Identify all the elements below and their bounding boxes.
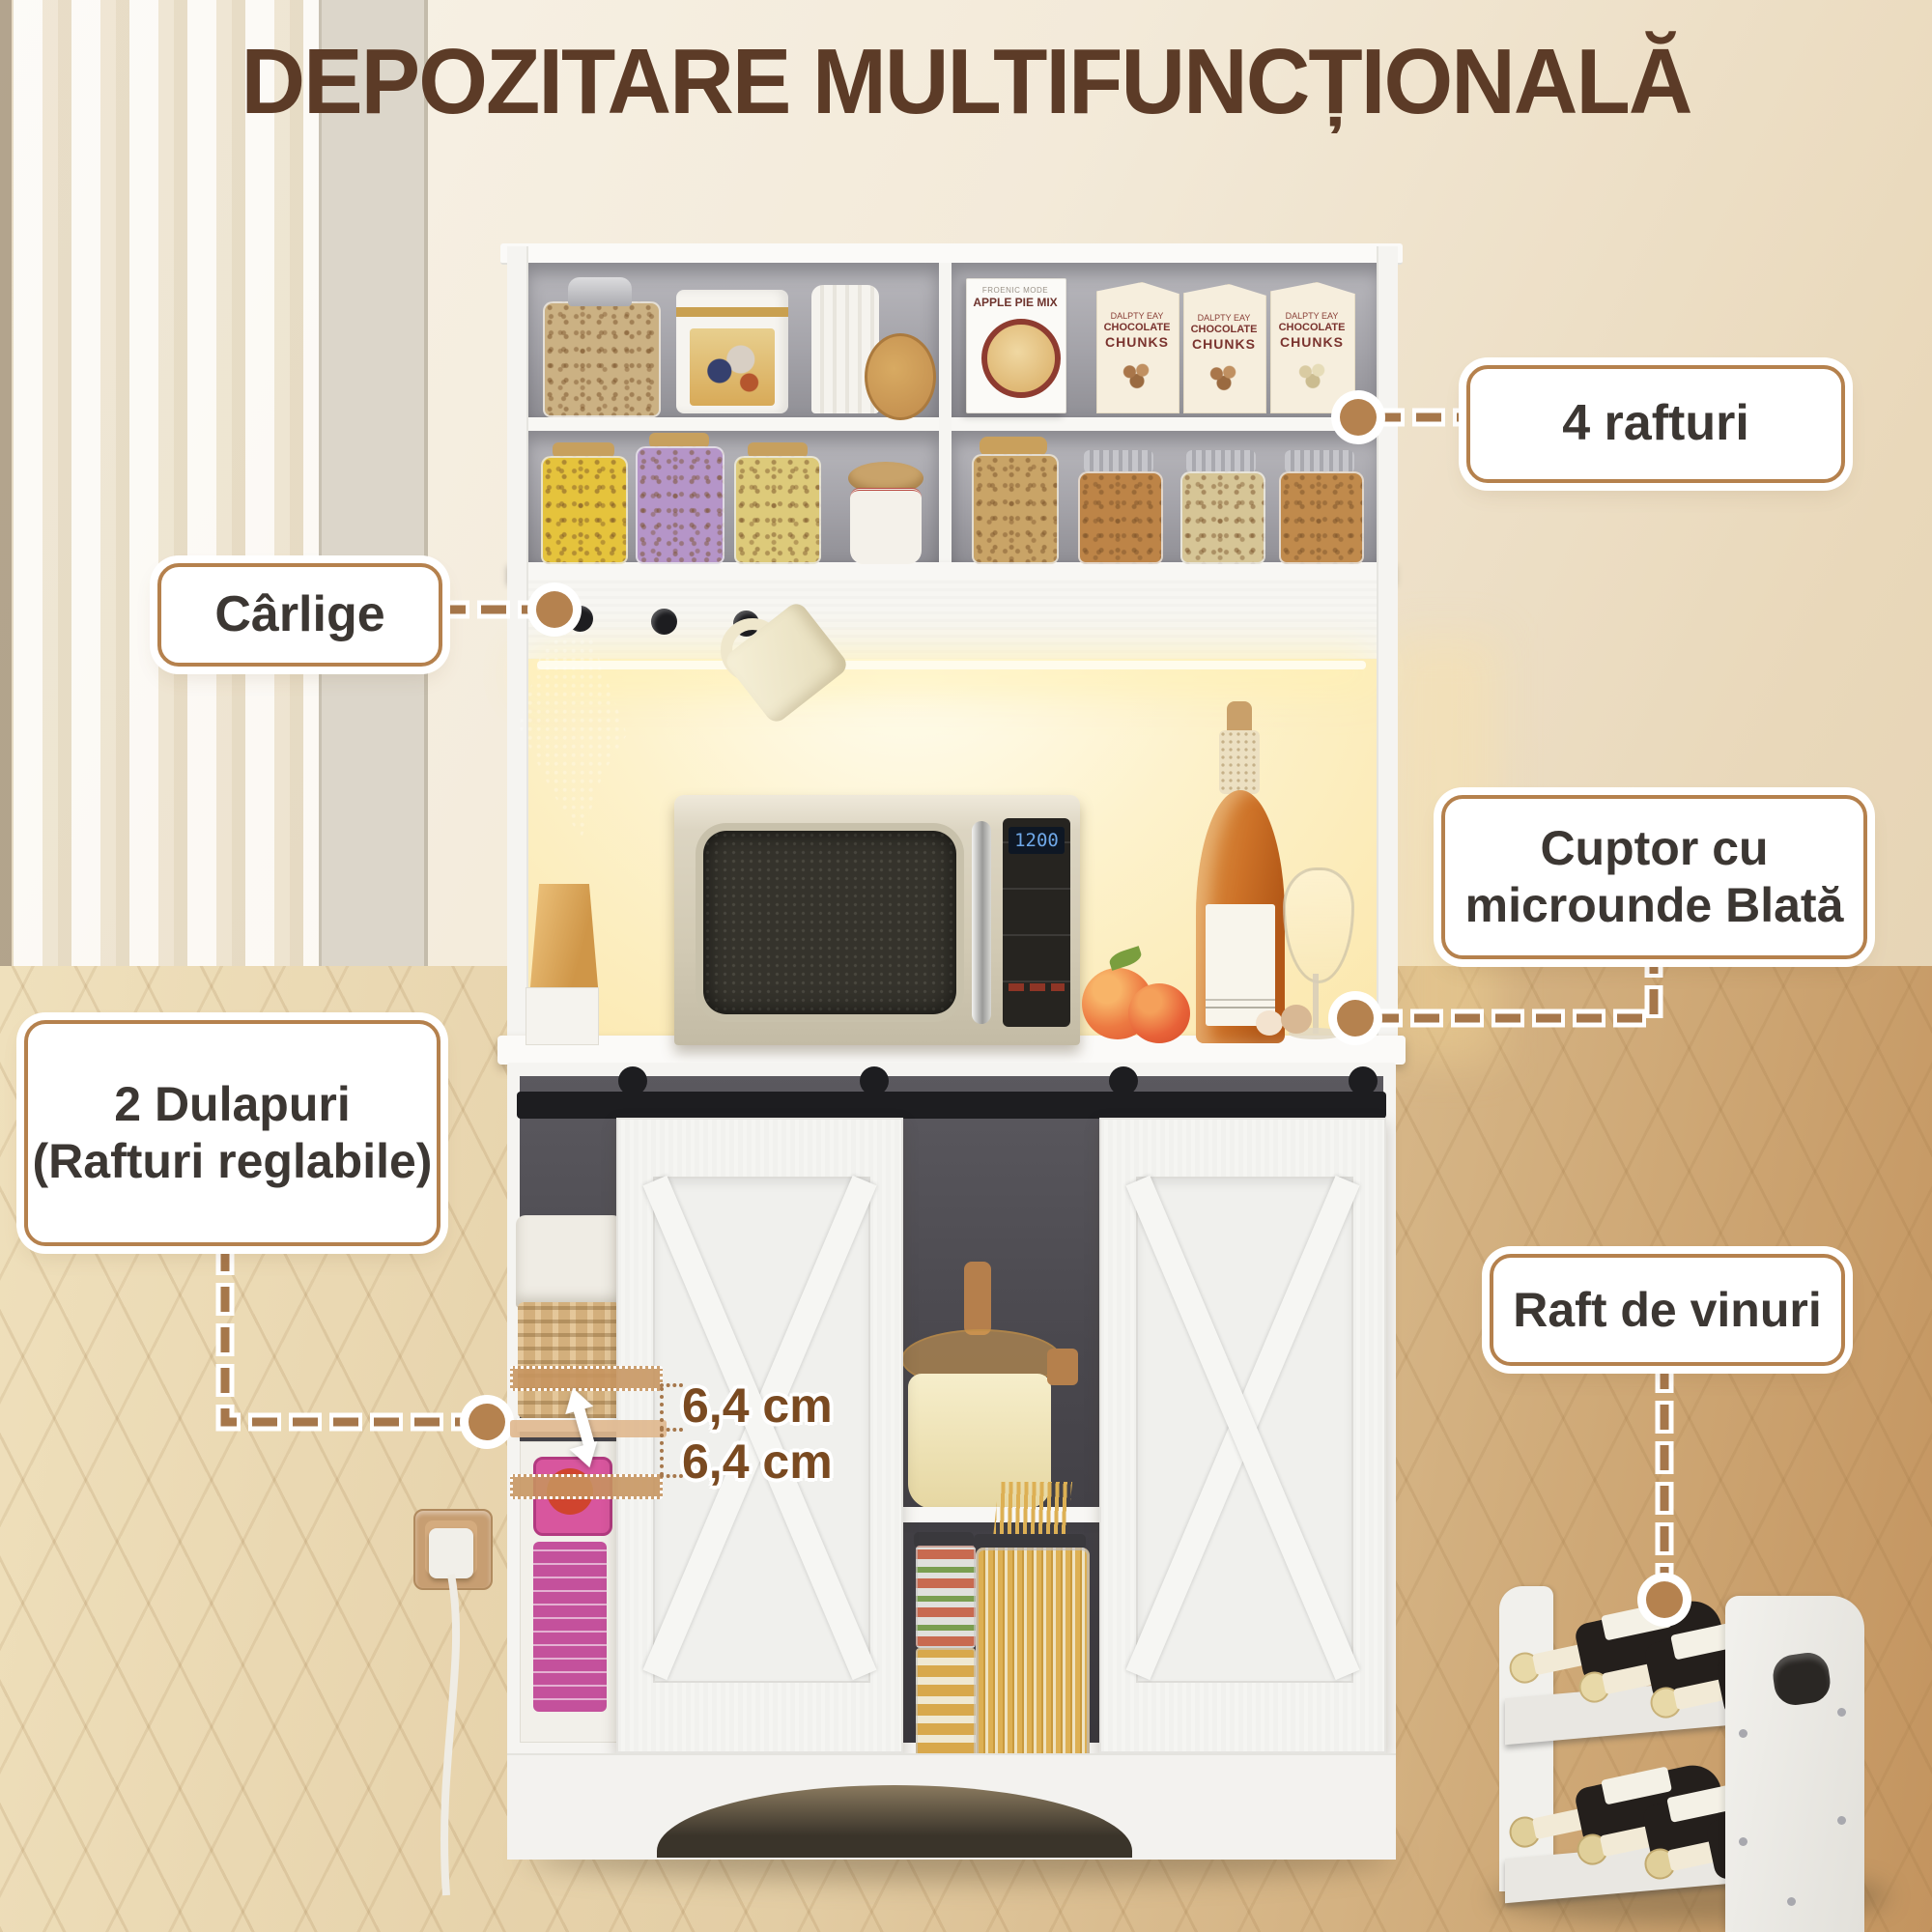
microwave-line-casing bbox=[1374, 958, 1654, 1018]
measurement-upper: 6,4 cm bbox=[682, 1378, 833, 1434]
callout-shelves: 4 rafturi bbox=[1466, 365, 1845, 483]
callout-microwave-line1: Cuptor cu bbox=[1540, 820, 1768, 877]
measure-bracket-top bbox=[660, 1383, 683, 1387]
shelf-position-lower-bar bbox=[510, 1474, 663, 1499]
cabinets-line-casing bbox=[225, 1246, 469, 1422]
measure-bracket-middle bbox=[660, 1428, 683, 1432]
callout-hooks-label: Cârlige bbox=[214, 585, 384, 644]
plug-cord bbox=[444, 1575, 456, 1895]
callout-microwave-line2: microunde Blată bbox=[1465, 877, 1844, 934]
measure-bracket-bottom bbox=[660, 1474, 683, 1478]
connector-dots bbox=[460, 390, 1691, 1627]
callout-cabinets-line2: (Rafturi reglabile) bbox=[33, 1133, 433, 1190]
callout-wine-rack-label: Raft de vinuri bbox=[1513, 1282, 1821, 1339]
annotation-lines bbox=[0, 0, 1932, 1932]
callout-cabinets: 2 Dulapuri (Rafturi reglabile) bbox=[24, 1020, 440, 1246]
callout-microwave: Cuptor cu microunde Blată bbox=[1441, 795, 1867, 959]
callout-hooks: Cârlige bbox=[157, 563, 442, 667]
cabinets-line bbox=[225, 1246, 469, 1422]
page-title: DEPOZITARE MULTIFUNCȚIONALĂ bbox=[39, 29, 1893, 135]
callout-shelves-label: 4 rafturi bbox=[1562, 394, 1749, 453]
measurement-lower: 6,4 cm bbox=[682, 1434, 833, 1490]
product-scene: FROENIC MODE APPLE PIE MIX DALPTY EAY CH… bbox=[0, 0, 1932, 1932]
callout-wine-rack: Raft de vinuri bbox=[1490, 1254, 1845, 1366]
callout-cabinets-line1: 2 Dulapuri bbox=[114, 1076, 350, 1133]
measure-bracket-vertical bbox=[660, 1387, 664, 1476]
